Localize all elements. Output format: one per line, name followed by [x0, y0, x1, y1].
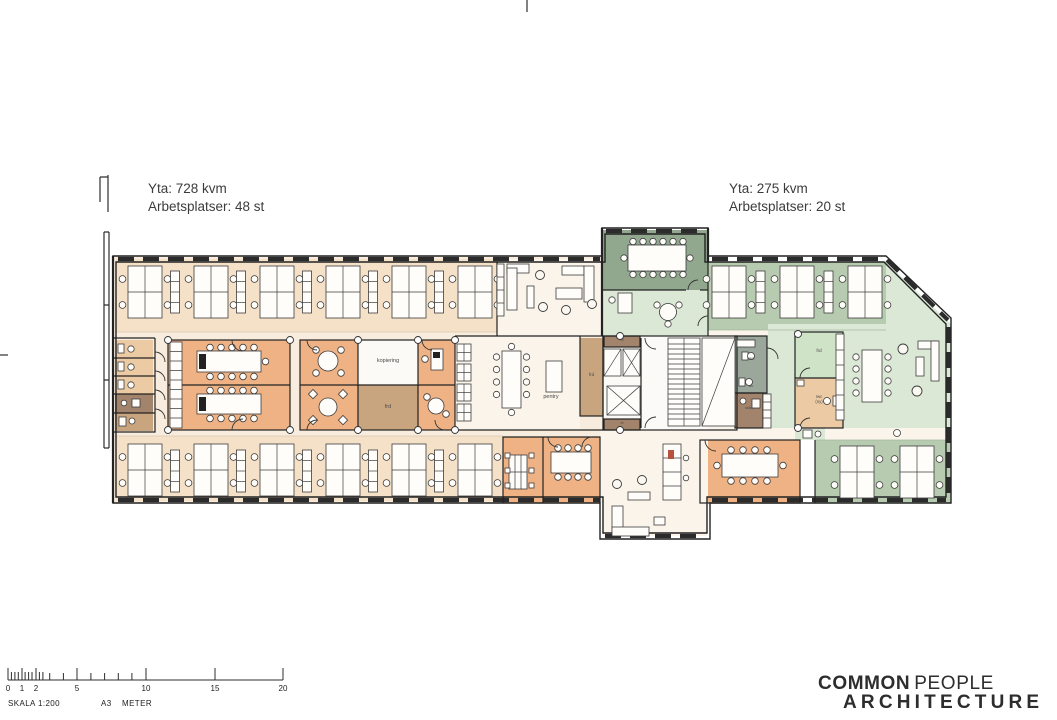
left-area-annotation: Yta: 728 kvm Arbetsplatser: 48 st [148, 180, 264, 215]
scale-ruler [8, 668, 283, 680]
room-label-rwc: rwc [736, 357, 766, 362]
scale-tick-10: 10 [136, 684, 156, 693]
room-label-frd-block: frd [363, 404, 413, 410]
right-area-annotation: Yta: 275 kvm Arbetsplatser: 20 st [729, 180, 845, 215]
scale-tick-5: 5 [67, 684, 87, 693]
room-label-pentry: pentry [536, 394, 566, 400]
room-label-el-bottom: el [612, 421, 632, 425]
scale-sheet: A3 [101, 699, 112, 708]
floor-plan-sheet: Yta: 728 kvm Arbetsplatser: 48 st Yta: 2… [0, 0, 1057, 720]
room-label-frd-right: frd [795, 349, 843, 354]
scale-tick-2: 2 [26, 684, 46, 693]
logo-word-common: COMMON [818, 673, 910, 694]
logo-word-people: PEOPLE [914, 673, 994, 694]
floor-plan-drawing [0, 0, 1057, 720]
left-area-size: Yta: 728 kvm [148, 180, 264, 198]
logo-line2: ARCHITECTURE [843, 692, 1043, 714]
scale-unit: METER [122, 699, 152, 708]
room-stad [735, 393, 763, 428]
left-area-workplaces: Arbetsplatser: 48 st [148, 198, 264, 216]
room-label-rwc-ny: rwc (ny) [795, 395, 843, 404]
room-label-wc: wc [736, 384, 766, 388]
room-label-stad: städ [735, 406, 763, 410]
right-area-size: Yta: 275 kvm [729, 180, 845, 198]
room-label-frd-core: frd [581, 373, 602, 378]
room-label-kopiering: kopiering [363, 358, 413, 364]
room-label-rwc-ny-line2: (ny) [795, 400, 843, 405]
scale-caption: SKALA 1:200 [8, 699, 60, 708]
right-area-workplaces: Arbetsplatser: 20 st [729, 198, 845, 216]
scale-tick-15: 15 [205, 684, 225, 693]
scale-tick-20: 20 [273, 684, 293, 693]
room-label-el-top: el [612, 338, 632, 342]
